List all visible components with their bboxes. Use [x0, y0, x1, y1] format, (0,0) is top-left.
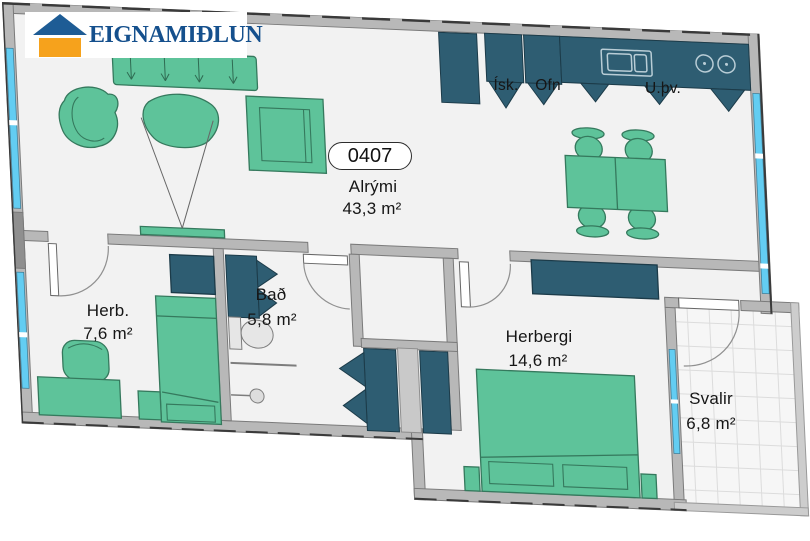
room-label-bad: Bað	[256, 285, 287, 305]
herb-bench	[138, 391, 161, 420]
closet-divider	[398, 348, 422, 433]
nightstand-left	[464, 467, 480, 492]
desk-chair	[62, 340, 110, 382]
room-area-alrymi: 43,3 m²	[342, 199, 401, 219]
bedroom-door-leaf	[459, 262, 470, 307]
room-label-alrymi: Alrými	[349, 177, 397, 197]
room-area-herbergi: 14,6 m²	[508, 351, 567, 371]
agency-logo: EIGNAMIÐLUN	[25, 12, 247, 58]
house-body-icon	[39, 38, 81, 57]
room-area-svalir: 6,8 m²	[686, 414, 735, 434]
house-icon	[25, 12, 89, 58]
house-roof-icon	[33, 14, 87, 35]
closet-left	[364, 349, 400, 432]
room-area-herb: 7,6 m²	[83, 324, 132, 344]
room-label-herb: Herb.	[87, 301, 130, 321]
balcony-door-leaf	[679, 298, 739, 311]
floor-plan-drawing	[2, 2, 810, 536]
label-fridge: Ísk.	[494, 77, 519, 95]
room-area-bad: 5,8 m²	[247, 310, 296, 330]
bath-door-leaf	[303, 254, 347, 265]
herb-wardrobe	[170, 255, 216, 295]
floor-plan-canvas	[2, 2, 810, 536]
room-label-herbergi: Herbergi	[506, 327, 573, 347]
bath-cabinet	[225, 255, 259, 318]
kitchen-tall-cabinet	[439, 32, 480, 104]
double-bed	[476, 369, 640, 498]
unit-number-badge: 0407	[328, 142, 412, 170]
closet-right	[420, 351, 452, 434]
label-utility: U.þv.	[645, 80, 681, 98]
nightstand-right	[641, 474, 657, 499]
bedroom-wardrobe	[531, 260, 659, 299]
toilet-tank	[228, 317, 242, 350]
label-oven: Ofn	[535, 77, 561, 95]
room-label-svalir: Svalir	[689, 389, 733, 409]
fridge-cabinet	[485, 33, 524, 83]
desk	[38, 377, 122, 418]
agency-logo-text: EIGNAMIÐLUN	[89, 22, 262, 49]
